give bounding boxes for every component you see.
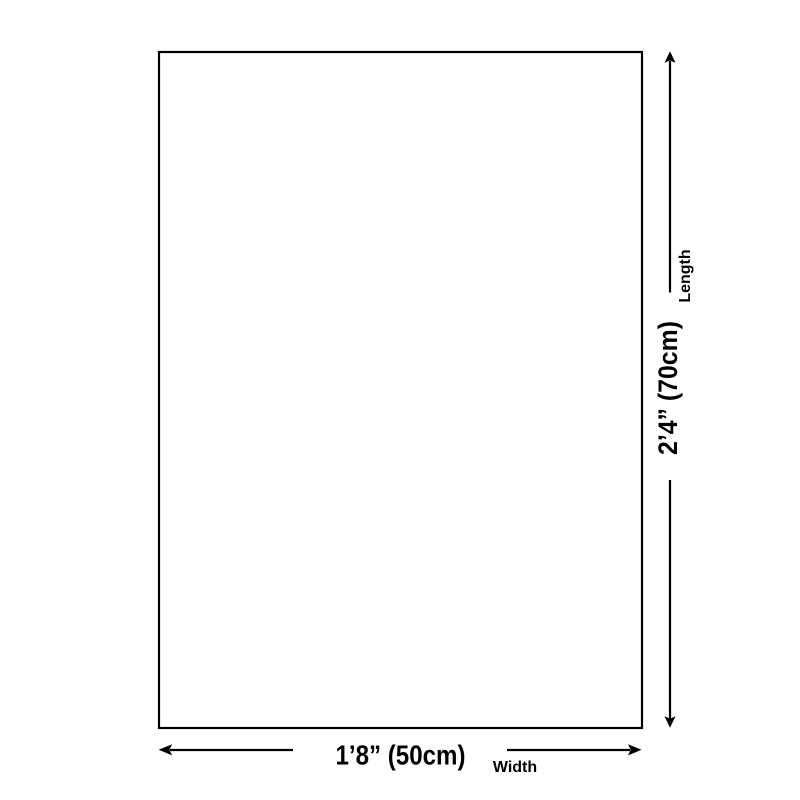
svg-text:1’8” (50cm): 1’8” (50cm)	[336, 740, 466, 771]
svg-text:Width: Width	[493, 759, 537, 776]
svg-text:2’4” (70cm): 2’4” (70cm)	[653, 321, 683, 455]
svg-text:Length: Length	[677, 249, 694, 302]
